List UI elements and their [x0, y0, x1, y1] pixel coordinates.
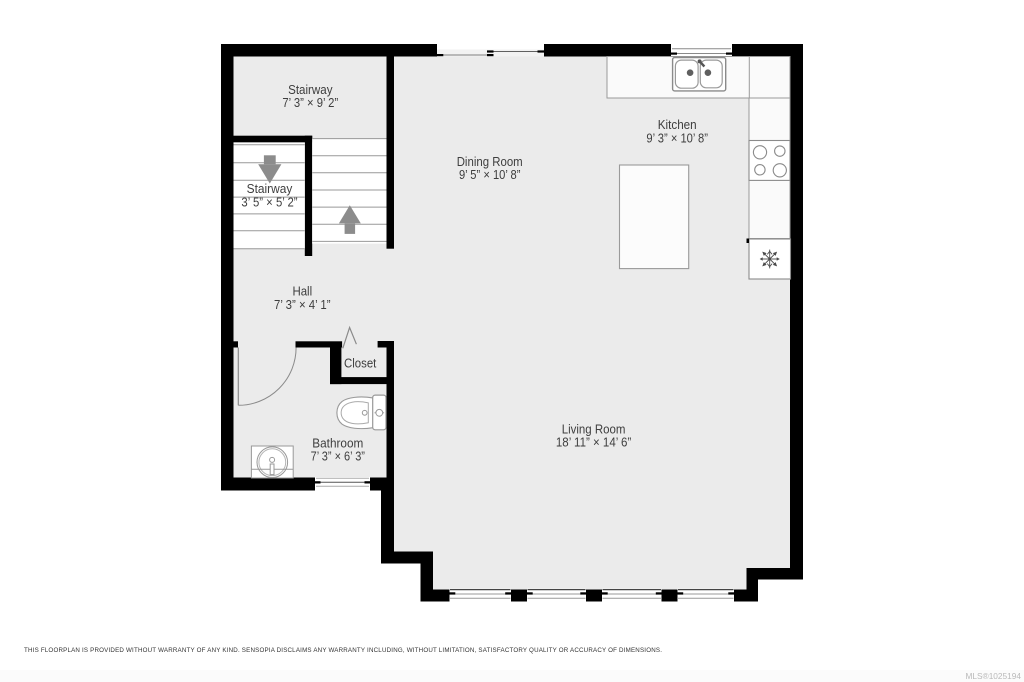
svg-text:9’ 5” × 10’ 8”: 9’ 5” × 10’ 8” — [459, 167, 521, 182]
svg-text:18’ 11” × 14’ 6”: 18’ 11” × 14’ 6” — [556, 435, 631, 450]
svg-text:Closet: Closet — [344, 356, 377, 371]
svg-text:9’ 3” × 10’ 8”: 9’ 3” × 10’ 8” — [646, 130, 708, 145]
svg-text:3’ 5” × 5’ 2”: 3’ 5” × 5’ 2” — [241, 195, 297, 210]
svg-text:MLS®1025194: MLS®1025194 — [966, 671, 1022, 681]
svg-text:7’ 3” × 6’ 3”: 7’ 3” × 6’ 3” — [311, 449, 365, 464]
svg-text:7’ 3” × 4’ 1”: 7’ 3” × 4’ 1” — [274, 297, 331, 312]
svg-text:THIS FLOORPLAN IS PROVIDED WIT: THIS FLOORPLAN IS PROVIDED WITHOUT WARRA… — [24, 647, 662, 654]
svg-text:7’ 3” × 9’ 2”: 7’ 3” × 9’ 2” — [282, 95, 338, 110]
